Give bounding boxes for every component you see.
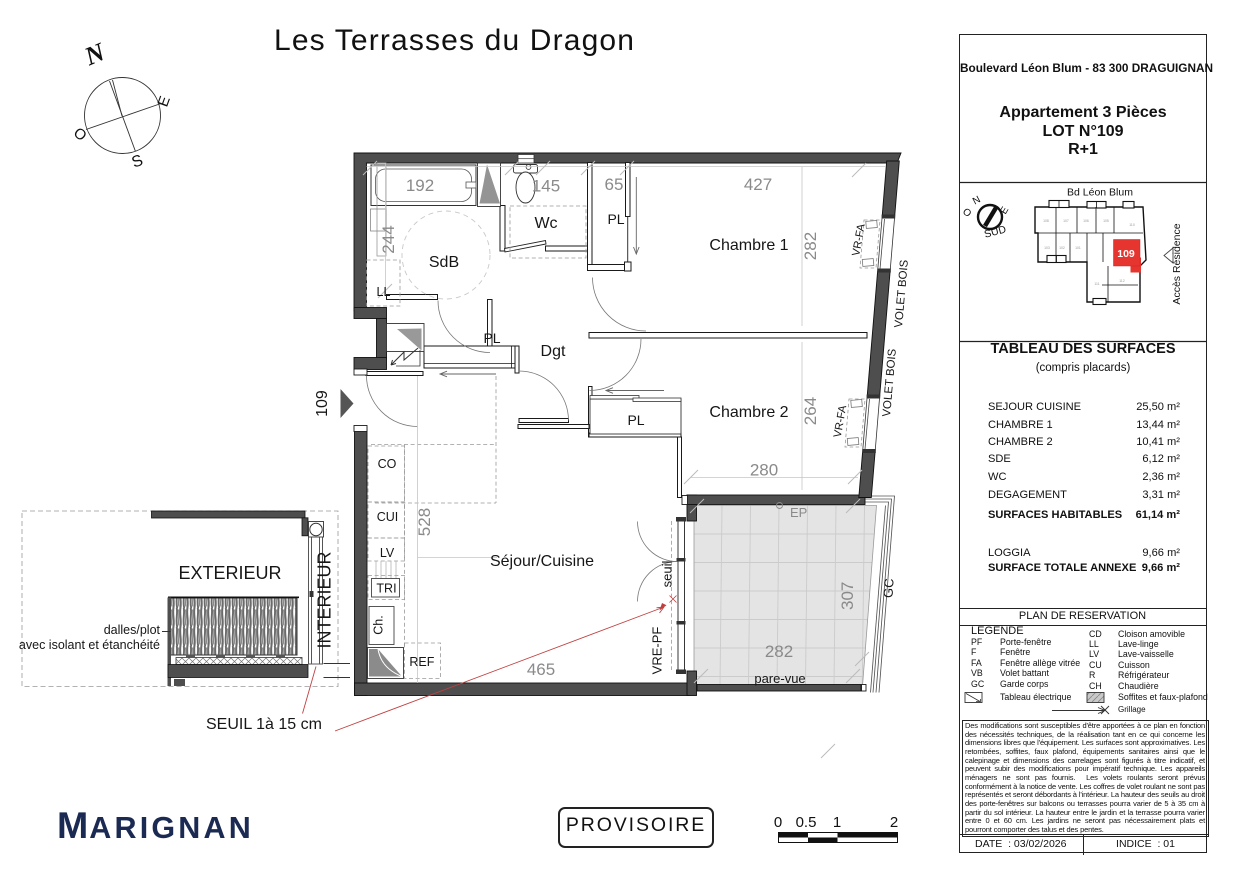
- svg-text:1: 1: [833, 814, 841, 831]
- svg-text:0.5: 0.5: [796, 814, 817, 831]
- svg-text:2: 2: [890, 814, 898, 831]
- svg-text:0: 0: [774, 814, 782, 831]
